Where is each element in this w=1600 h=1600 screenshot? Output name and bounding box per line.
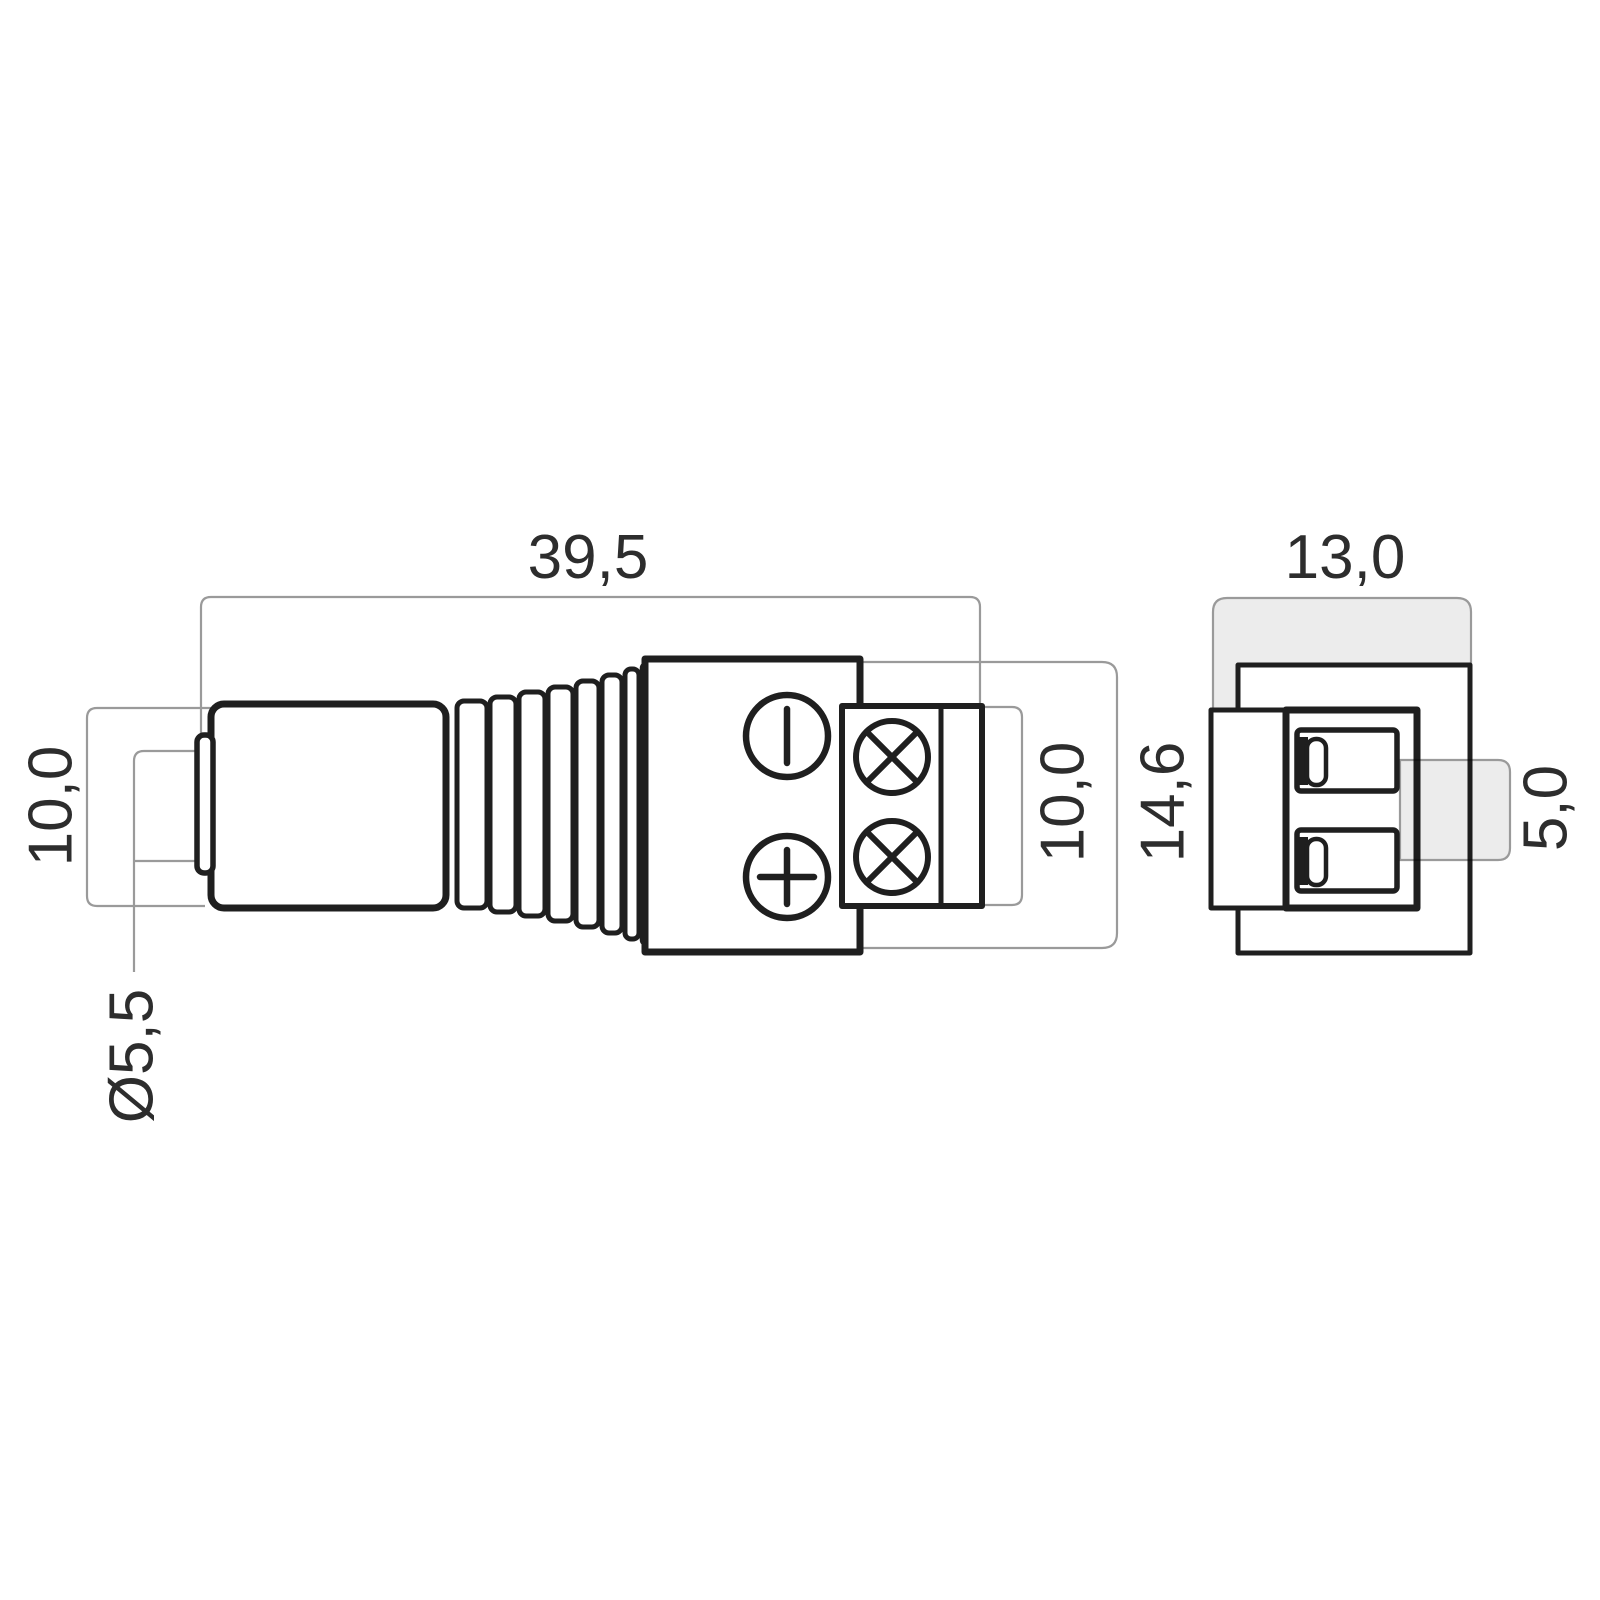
rib: [519, 692, 545, 916]
wire-entry-top: [1297, 730, 1397, 791]
positive-polarity-icon: [746, 836, 828, 918]
housing-body: [645, 659, 860, 952]
terminal-block: [842, 706, 982, 906]
dim-tip-diameter-label: Ø5,5: [98, 989, 167, 1123]
wire-entry-bottom: [1297, 830, 1397, 891]
technical-drawing-page: 39,5 13,0 10,0 Ø5,5 10,0 14,6 5,0: [0, 0, 1600, 1600]
rib: [576, 681, 599, 927]
dim-contact-pitch-lines: [1400, 760, 1510, 860]
mounting-flange: [1211, 710, 1287, 908]
dim-housing-height-label: 14,6: [1129, 742, 1198, 863]
dim-plug-sleeve-height-label: 10,0: [17, 746, 86, 867]
strain-relief-ribs: [457, 664, 650, 944]
dim-terminal-block-height-label: 10,0: [1029, 742, 1098, 863]
dim-terminal-block-height-lines: [982, 707, 1022, 905]
dim-plug-sleeve-height-lines: [87, 708, 211, 906]
rib: [548, 687, 573, 921]
side-view: [197, 659, 982, 952]
dim-tip-diameter-lines: [134, 751, 197, 972]
dim-contact-pitch-label: 5,0: [1512, 765, 1581, 851]
dimension-extension-box: [1400, 760, 1510, 860]
barrel-tip: [197, 735, 213, 873]
rib: [602, 675, 622, 933]
dim-housing-width-label: 13,0: [1285, 523, 1406, 592]
rib: [625, 669, 639, 939]
dc-plug-dimensional-drawing: 39,5 13,0 10,0 Ø5,5 10,0 14,6 5,0: [0, 0, 1600, 1600]
rib: [457, 701, 487, 908]
rib: [490, 697, 516, 912]
dim-overall-length-label: 39,5: [528, 523, 649, 592]
barrel-body: [211, 704, 446, 908]
end-view: [1211, 665, 1510, 953]
